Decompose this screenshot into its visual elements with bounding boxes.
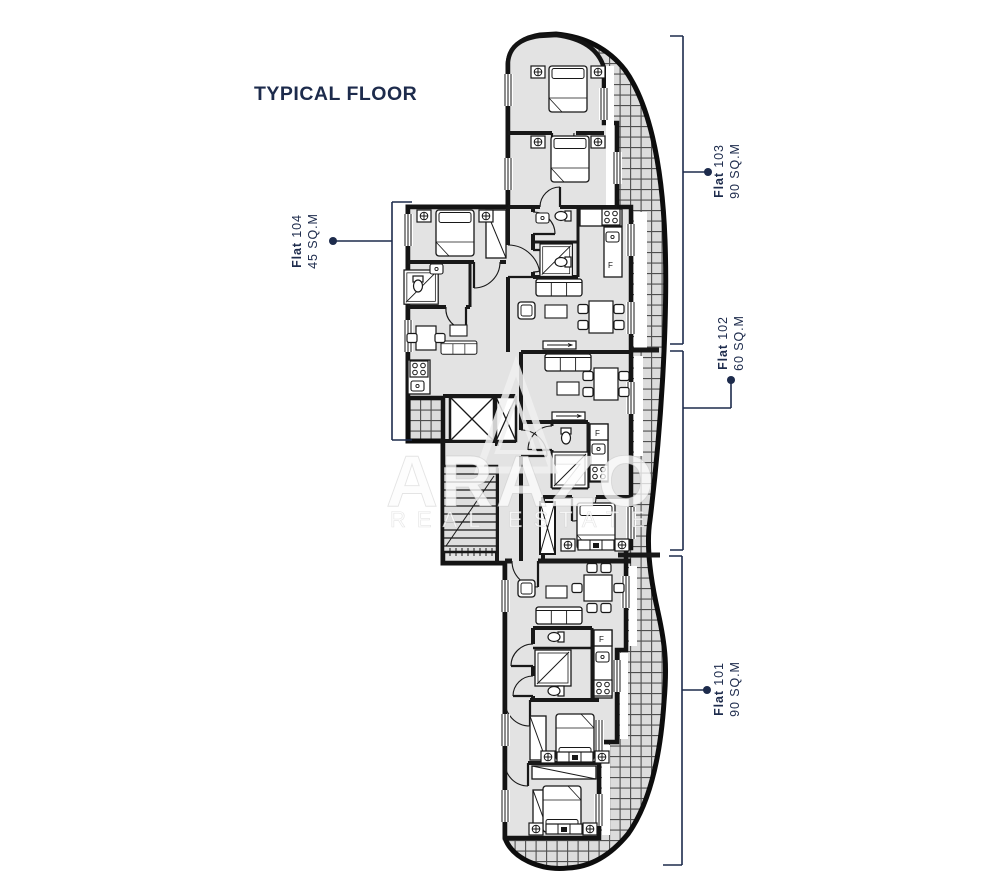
- flat-102-leader: [670, 351, 731, 550]
- svg-text:F: F: [608, 261, 613, 270]
- watermark-tagline: REAL ESTATE: [390, 507, 656, 532]
- flat-103-leader: [670, 36, 706, 344]
- flat-104-leader: [334, 202, 412, 440]
- floor-plan-drawing: F F F: [0, 0, 999, 895]
- flat-101-leader: [663, 556, 705, 865]
- svg-text:F: F: [599, 635, 604, 644]
- floor-plan-page: TYPICAL FLOOR: [0, 0, 999, 895]
- svg-text:F: F: [595, 429, 600, 438]
